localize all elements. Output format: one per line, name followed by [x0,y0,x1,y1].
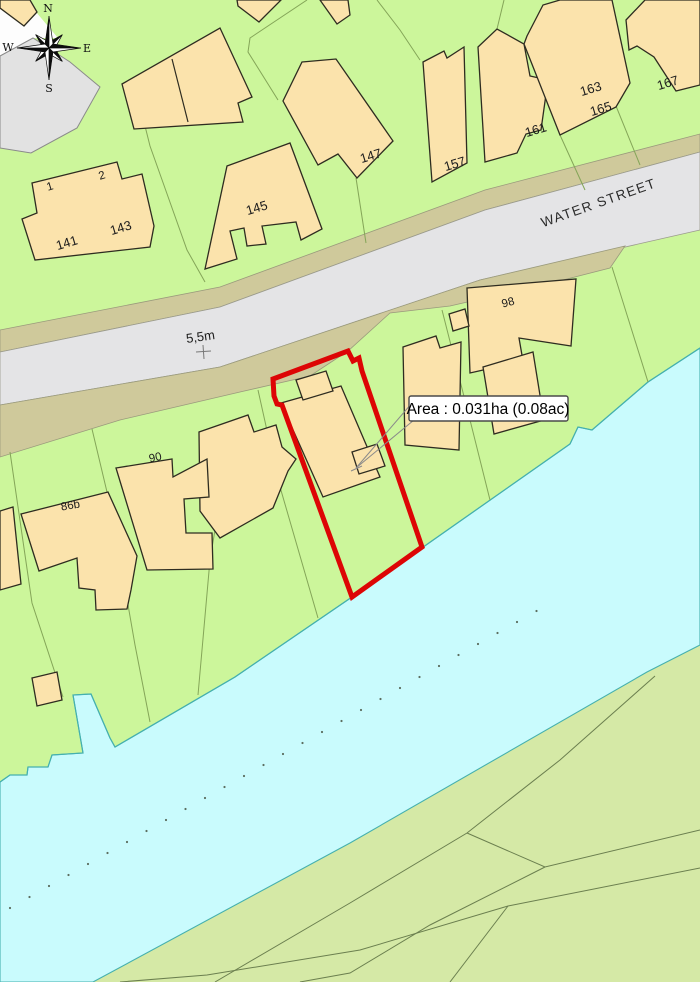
compass-north-label: N [43,2,53,15]
compass-south-label: S [45,82,53,95]
parcel-map: 1 2 141 143 145 147 157 161 163 165 167 … [0,0,700,982]
map-canvas[interactable]: 1 2 141 143 145 147 157 161 163 165 167 … [0,0,700,982]
building-riverside-a [483,352,544,434]
area-annotation-text: Area : 0.031ha (0.08ac) [407,401,570,418]
compass-east-label: E [83,42,91,55]
compass-west-label: W [2,41,14,54]
building-riverside-b [403,336,461,450]
building-riverside-shed [32,672,62,706]
